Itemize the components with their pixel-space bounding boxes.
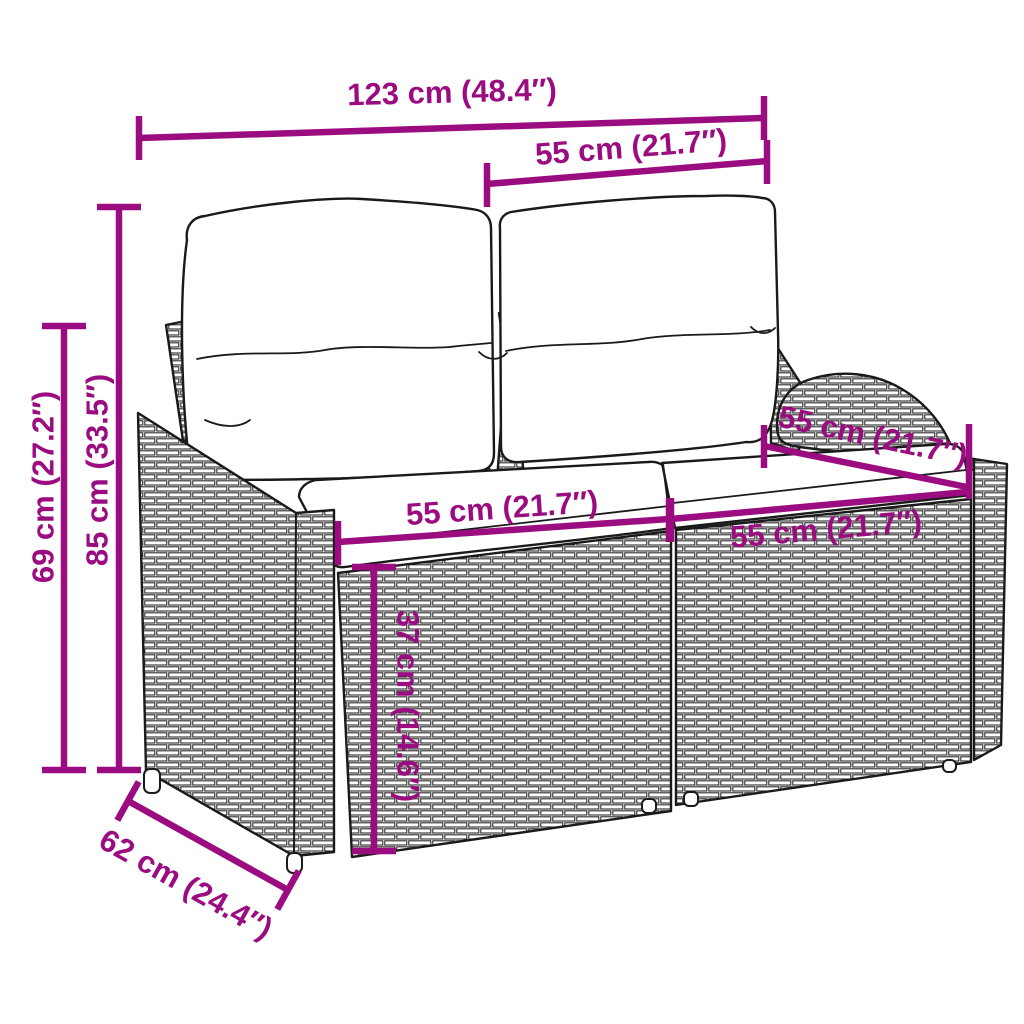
dim-tick — [117, 782, 138, 821]
product-dimension-diagram: 123 cm (48.4″) 55 cm (21.7″) 85 cm (33.5… — [0, 0, 1024, 1024]
sofa-foot — [642, 799, 656, 813]
side-panel-right — [974, 459, 1007, 760]
sofa-foot — [943, 760, 956, 772]
dim-label-total-width: 123 cm (48.4″) — [347, 72, 557, 112]
back-cushion-right — [500, 196, 778, 463]
dim-label-total-depth: 62 cm (24.4″) — [94, 822, 279, 946]
dim-label-arm-height: 69 cm (27.2″) — [26, 391, 61, 583]
dim-arm-height: 69 cm (27.2″) — [26, 326, 87, 770]
dim-back-height: 85 cm (33.5″) — [80, 207, 142, 770]
dim-label-back-height: 85 cm (33.5″) — [80, 374, 115, 566]
back-cushion-left — [182, 199, 494, 480]
sofa-dimension-diagram-canvas: 123 cm (48.4″) 55 cm (21.7″) 85 cm (33.5… — [0, 0, 1024, 1024]
dim-tick — [277, 871, 298, 910]
sofa-foot — [287, 853, 302, 873]
dim-label-seat-height: 37 cm (14.6″) — [391, 610, 426, 802]
dim-back-cushion-width: 55 cm (21.7″) — [487, 122, 767, 207]
sofa-foot — [144, 769, 160, 793]
sofa-foot — [684, 792, 698, 806]
base-front-left — [338, 531, 671, 857]
